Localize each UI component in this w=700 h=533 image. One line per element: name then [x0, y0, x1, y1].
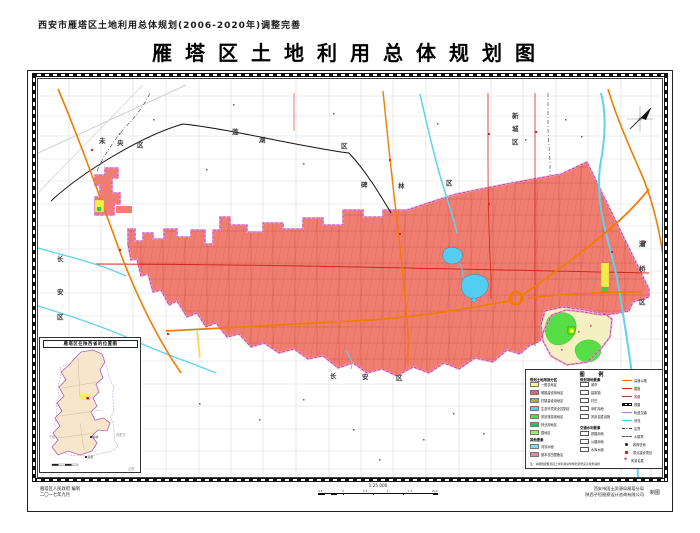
legend-item-label: 水库水面 [591, 447, 604, 452]
legend-item-label: 政府驻地 [633, 442, 646, 447]
legend-dashdot-symbol [622, 428, 632, 429]
compass-icon [627, 106, 653, 132]
legend-item: 村庄 [580, 398, 597, 403]
legend-box-swatch [580, 382, 589, 387]
legend-swatch [530, 430, 539, 435]
legend-item: 生态环境安全控制区 [530, 406, 570, 411]
legend-line-symbol [622, 412, 632, 414]
district-label-char: 桥 [639, 266, 646, 273]
inset-neighbor-label: 山西 [128, 468, 134, 471]
legend-item: 风景名胜设施 [580, 414, 610, 419]
yellow-road-segment [197, 331, 200, 357]
legend-square-symbol [625, 451, 628, 454]
scale-bar: 1:25 000 0.500.511.52km [316, 483, 440, 495]
legend-item-label: 重点建设项目 [633, 450, 652, 455]
district-label-char: 区 [446, 180, 453, 187]
west-green-patch [97, 207, 101, 211]
inset-graphics [40, 338, 141, 473]
legend-col-symbols: 高速公路国道省道铁路轨道交通河流区界乡镇界政府驻地重点建设项目★风景名胜 [622, 370, 663, 468]
legend-item: 政府驻地 [622, 442, 646, 447]
legend-item: 河流 [622, 418, 640, 423]
scale-tick: 0.5 [363, 489, 367, 493]
legend-item: 重点建设项目 [622, 450, 652, 455]
district-label-char: 灞 [639, 241, 646, 248]
planning-map-sheet: 西安市雁塔区土地利用总体规划(2006-2020年)调整完善 雁塔区土地利用总体… [0, 0, 700, 533]
scale-tick: 0 [342, 489, 344, 493]
inset-neighbor-label: 内蒙古 [116, 434, 126, 437]
scenic-green-2 [575, 340, 601, 362]
map-title: 雁塔区土地利用总体规划图 [0, 37, 700, 66]
legend-item-label: 高速公路 [634, 378, 647, 383]
legend-swatch [530, 382, 539, 387]
legend-item: 公路用地 [580, 439, 604, 444]
district-label-char: 央 [117, 140, 124, 147]
district-label-char: 长 [330, 373, 337, 380]
legend-item-label: 城镇建设用地区 [541, 390, 563, 395]
inset-neighbor-label: 宁夏 [49, 436, 55, 439]
shaanxi-province [52, 350, 110, 455]
legend-box-swatch [580, 431, 589, 436]
legend-header: 其他要素 [530, 437, 544, 442]
furong-lake [443, 247, 463, 264]
legend-line-symbol [622, 396, 632, 398]
legend-item-label: 风景旅游用地区 [541, 414, 563, 419]
legend-box-swatch [580, 414, 589, 419]
district-label-char: 城 [512, 126, 519, 133]
legend-item: 建制镇 [580, 390, 601, 395]
legend-item-label: 村镇建设用地区 [541, 398, 563, 403]
scale-tick: 1 [387, 489, 389, 493]
legend-item: 基本农田整备区 [530, 452, 563, 457]
legend-item-label: 城市 [591, 382, 597, 387]
scale-ratio: 1:25 000 [316, 483, 440, 488]
scale-tick: 0.5 [318, 489, 322, 493]
legend-item: 园地区 [530, 430, 551, 435]
frame-tick-band-right [664, 73, 668, 482]
legend-item: 区界 [622, 426, 640, 431]
inset-city-label: 榆林 [90, 436, 98, 439]
legend-item-label: 一般农地区 [541, 382, 557, 387]
scale-tick: 2km [432, 489, 438, 493]
legend-item-label: 村庄 [591, 398, 597, 403]
district-label-char: 区 [137, 142, 144, 149]
legend-item: 林业用地区 [530, 422, 557, 427]
legend-col-zoning: 规划土地用途分区 其他要素 一般农地区城镇建设用地区村镇建设用地区生态环境安全控… [530, 370, 578, 468]
legend-item-label: 基本农田整备区 [541, 452, 563, 457]
district-label-char: 区 [639, 299, 646, 306]
district-label-char: 新 [512, 113, 519, 120]
district-label-char: 碑 [361, 182, 368, 189]
inset-yanta-marker [87, 397, 89, 399]
legend-swatch [530, 452, 539, 457]
legend-item-label: 生态环境安全控制区 [541, 406, 570, 411]
district-label-char: 湖 [259, 137, 266, 144]
map-canvas: 未央区莲湖区新城区碑林区灞桥区长安区长安区 图 例 规划土地用途分区 其他要素 … [37, 78, 663, 478]
credit-left-line2: 二〇一七年九月 [40, 493, 80, 499]
legend-item-label: 轨道交通 [634, 410, 647, 415]
district-label-char: 区 [396, 375, 403, 382]
legend-swatch [530, 444, 539, 449]
district-label-char: 区 [57, 314, 64, 321]
scale-rule [318, 493, 438, 496]
legend-item: 水库水面 [580, 447, 604, 452]
legend-box-swatch [580, 439, 589, 444]
legend-item: 铁路 [622, 402, 640, 407]
district-label-char: 林 [398, 183, 405, 190]
district-label-char: 区 [341, 143, 348, 150]
district-label-char: 安 [57, 289, 64, 296]
legend-swatch [530, 414, 539, 419]
legend-item-label: 风景名胜 [631, 458, 644, 463]
district-label-char: 长 [57, 256, 64, 263]
east-yellow-strip [601, 263, 609, 287]
legend-swatch [530, 422, 539, 427]
legend-rail-symbol [622, 403, 632, 405]
legend-item-label: 铁路 [634, 402, 640, 407]
legend-item: 省道 [622, 394, 640, 399]
legend-note: 注：本图根据雁塔区土地利用总体规划调整完善成果编制 [530, 462, 600, 466]
credit-right-suffix: 制图 [650, 489, 660, 496]
legend-col-landuse: 规划用地要素 交通水利要素 城市建制镇村庄采矿用地风景名胜设施铁路用地公路用地水… [580, 370, 620, 468]
legend-line-symbol [622, 388, 632, 390]
legend-item-label: 建制镇 [591, 390, 601, 395]
legend-item-label: 河流水面 [541, 444, 554, 449]
frame-tick-band-top [32, 73, 668, 77]
legend-item: 乡镇界 [622, 434, 644, 439]
legend-box: 图 例 规划土地用途分区 其他要素 一般农地区城镇建设用地区村镇建设用地区生态环… [525, 369, 663, 469]
district-label-char: 莲 [232, 129, 239, 136]
doc-subtitle: 西安市雁塔区土地利用总体规划(2006-2020年)调整完善 [38, 18, 301, 31]
credit-right-line2: 陕西子恒勘察设计咨询有限公司 [585, 492, 644, 498]
scenic-yellow-core [571, 330, 574, 333]
urban-zone-corridor [116, 206, 132, 213]
legend-item-label: 区界 [634, 426, 640, 431]
legend-item: 国道 [622, 386, 640, 391]
scale-tick: 1.5 [408, 489, 412, 493]
legend-item-label: 园地区 [541, 430, 551, 435]
legend-swatch [530, 398, 539, 403]
inset-locator-map: 雁塔区在陕西省的位置图 内蒙古山西河南湖北四川甘肃宁夏榆林延安西安渭南汉中安康 [39, 337, 141, 473]
legend-swatch [530, 406, 539, 411]
legend-box-swatch [580, 406, 589, 411]
legend-star-symbol: ★ [624, 458, 628, 463]
legend-box-swatch [580, 447, 589, 452]
legend-item: 高速公路 [622, 378, 647, 383]
nw-road-2 [38, 85, 143, 193]
legend-item-label: 风景名胜设施 [591, 414, 610, 419]
legend-item: 河流水面 [530, 444, 554, 449]
legend-line-symbol [622, 380, 632, 382]
legend-item-label: 乡镇界 [634, 434, 644, 439]
legend-item: 城镇建设用地区 [530, 390, 563, 395]
legend-item-label: 公路用地 [591, 439, 604, 444]
legend-header: 交通水利要素 [580, 425, 600, 430]
legend-item: 风景旅游用地区 [530, 414, 563, 419]
frame-tick-band-left [32, 73, 36, 482]
legend-item-label: 铁路用地 [591, 431, 604, 436]
district-label-char: 安 [362, 374, 369, 381]
legend-box-swatch [580, 398, 589, 403]
district-label-char: 未 [99, 138, 106, 145]
district-label-char: 区 [512, 139, 519, 146]
legend-item: 铁路用地 [580, 431, 604, 436]
legend-item: ★风景名胜 [622, 458, 644, 463]
legend-item: 城市 [580, 382, 597, 387]
credit-left: 雁塔区人民政府 编制 二〇一七年九月 [40, 487, 80, 499]
legend-item-label: 省道 [634, 394, 640, 399]
inset-city-label: 延安 [85, 456, 93, 459]
legend-box-swatch [580, 390, 589, 395]
legend-swatch [530, 390, 539, 395]
legend-item: 轨道交通 [622, 410, 647, 415]
legend-dot-symbol [625, 443, 628, 446]
legend-item-label: 采矿用地 [591, 406, 604, 411]
east-green-patch [602, 287, 608, 292]
legend-line-symbol [622, 420, 632, 422]
legend-dash-symbol [622, 436, 632, 437]
legend-item: 一般农地区 [530, 382, 557, 387]
legend-item-label: 林业用地区 [541, 422, 557, 427]
legend-item: 村镇建设用地区 [530, 398, 563, 403]
legend-item-label: 国道 [634, 386, 640, 391]
frame-tick-band-bottom [32, 478, 668, 482]
legend-item: 采矿用地 [580, 406, 604, 411]
legend-item-label: 河流 [634, 418, 640, 423]
